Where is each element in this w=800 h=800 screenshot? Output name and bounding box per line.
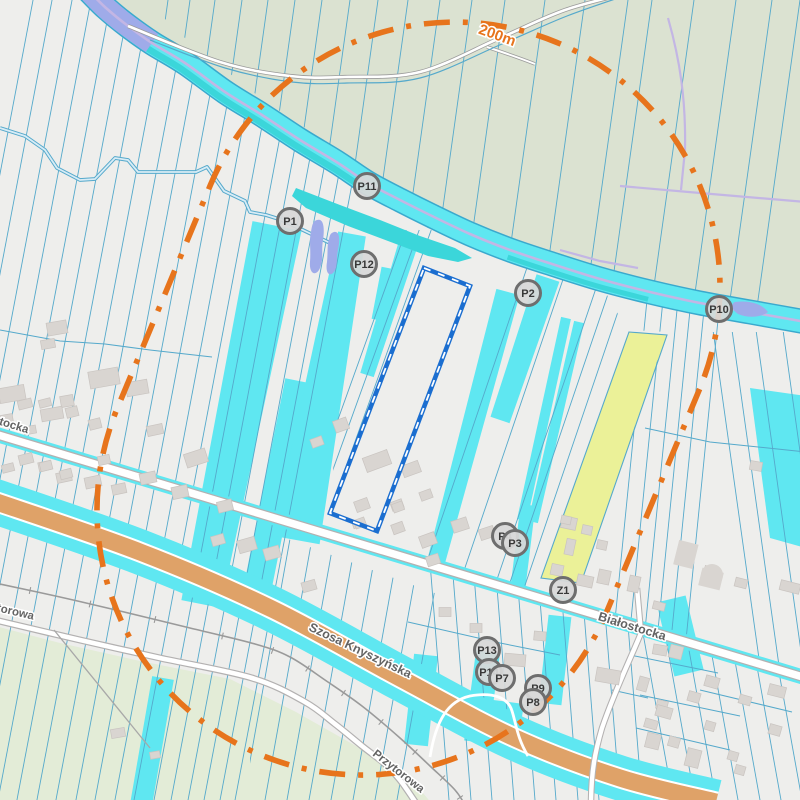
svg-text:P12: P12 bbox=[354, 259, 374, 271]
svg-text:P8: P8 bbox=[526, 697, 539, 709]
svg-text:P2: P2 bbox=[521, 288, 534, 300]
svg-text:P13: P13 bbox=[477, 645, 497, 657]
svg-text:Z1: Z1 bbox=[557, 585, 570, 597]
svg-text:P10: P10 bbox=[709, 304, 729, 316]
svg-text:P7: P7 bbox=[495, 673, 508, 685]
svg-text:P1: P1 bbox=[283, 216, 296, 228]
svg-text:P3: P3 bbox=[508, 538, 521, 550]
svg-text:P11: P11 bbox=[358, 181, 377, 193]
